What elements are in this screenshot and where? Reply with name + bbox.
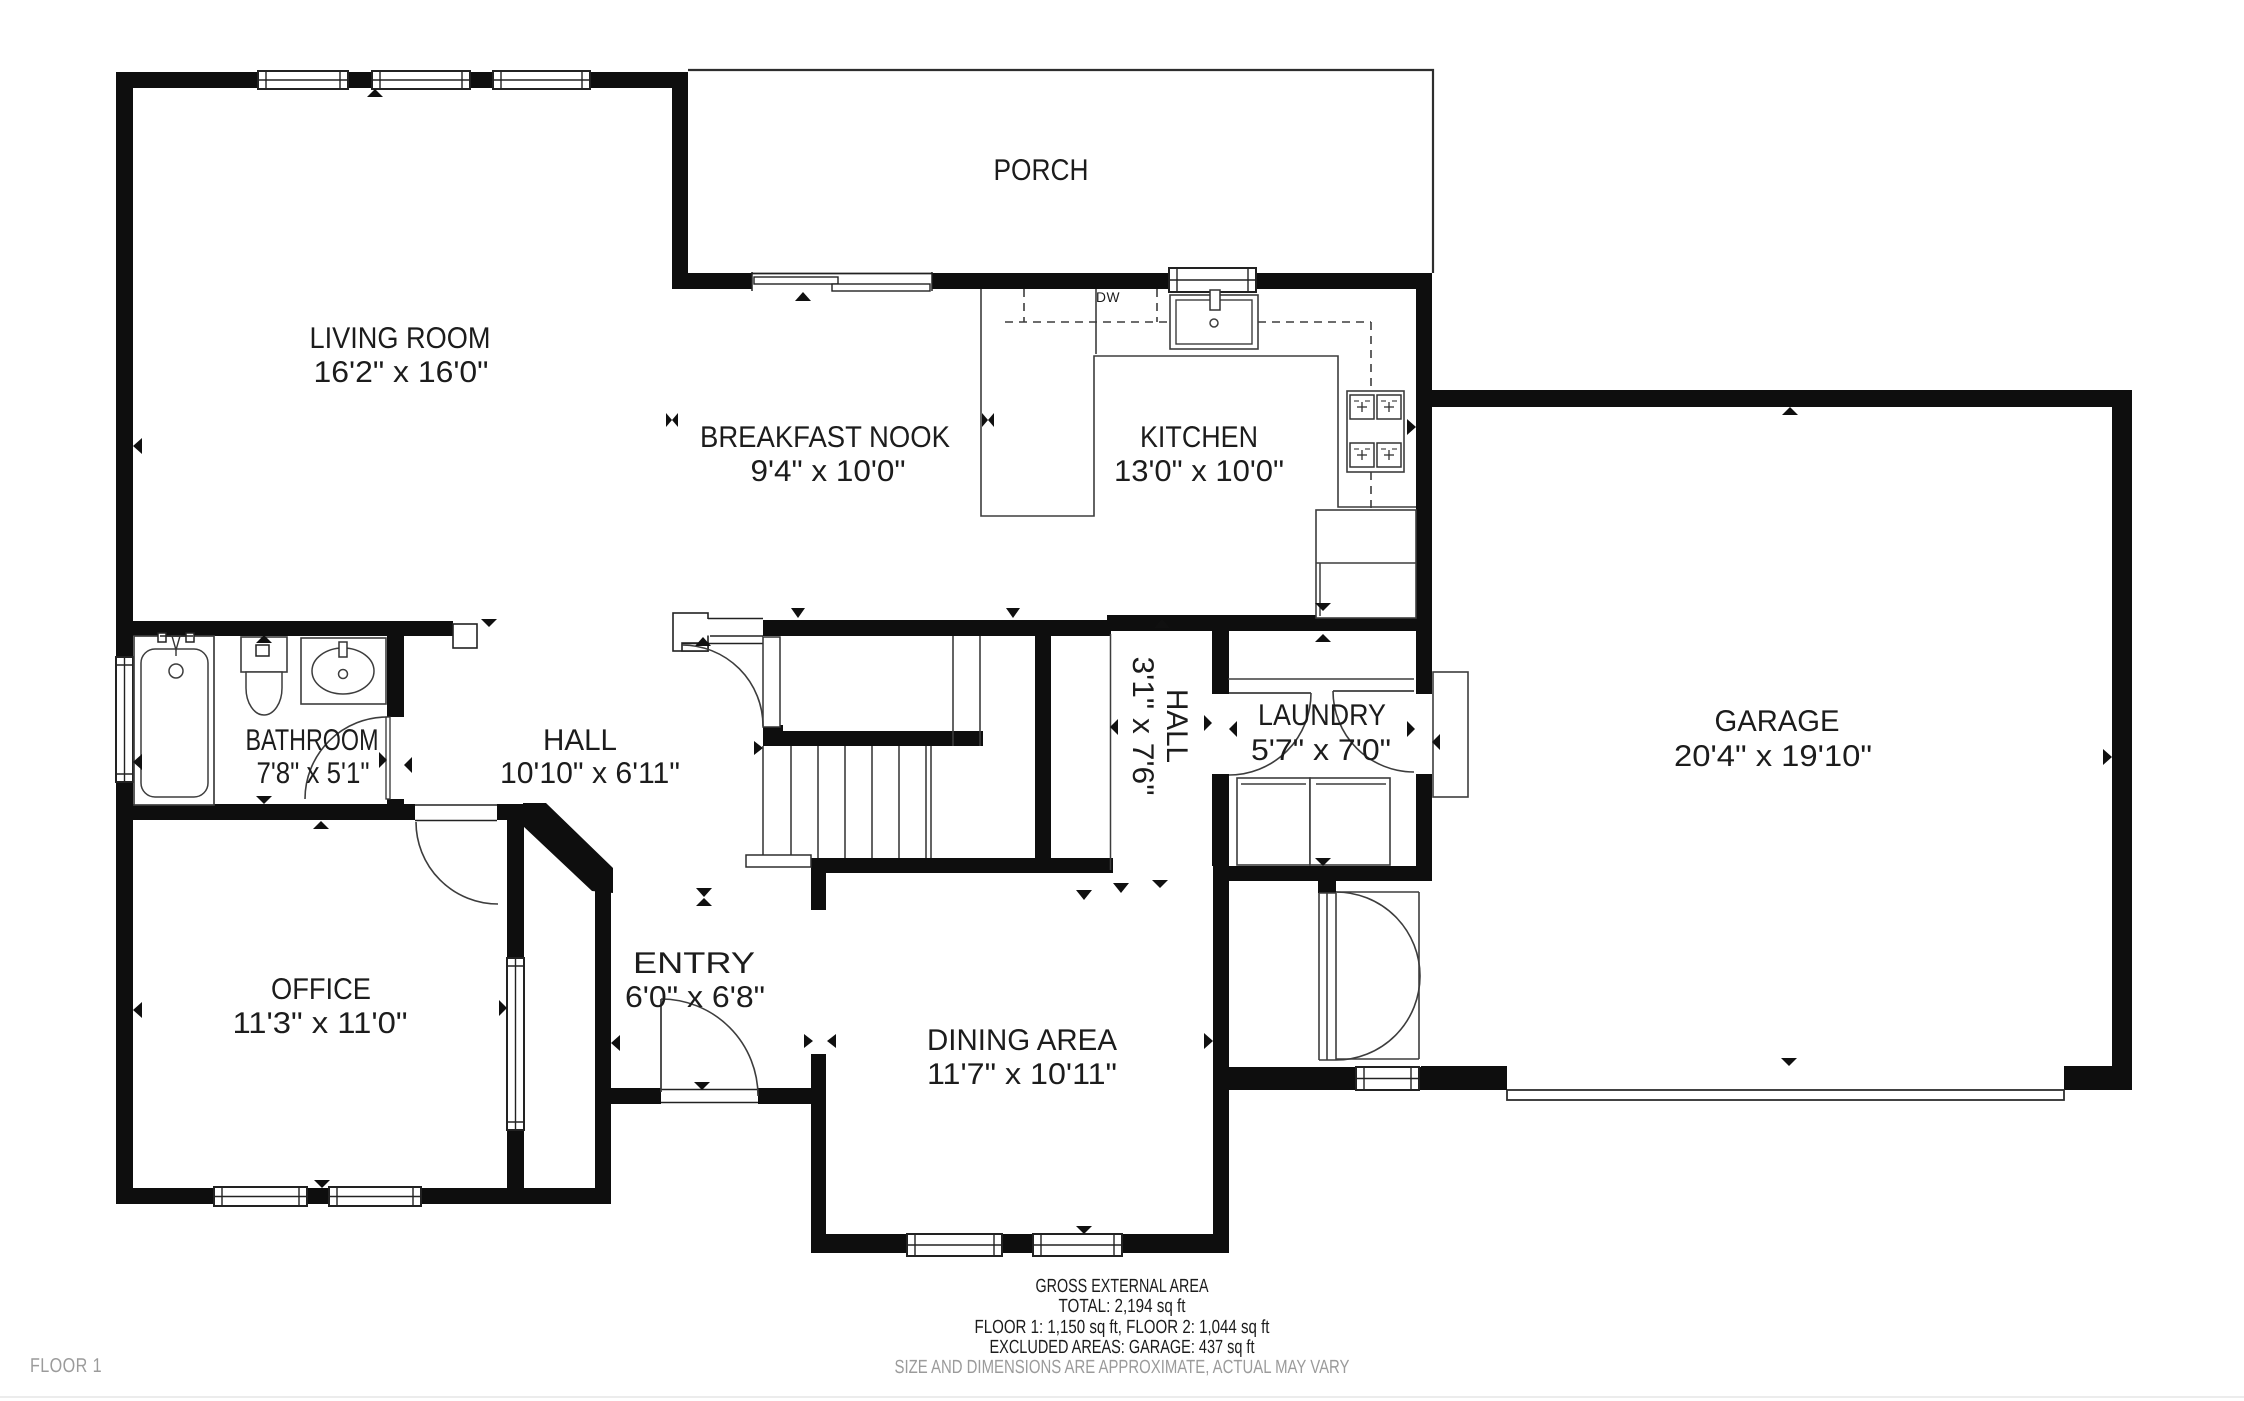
svg-text:GARAGE: GARAGE: [1715, 705, 1840, 738]
svg-text:HALL: HALL: [543, 724, 617, 757]
svg-text:DW: DW: [1096, 289, 1120, 305]
svg-text:20'4" x 19'10": 20'4" x 19'10": [1674, 740, 1872, 773]
svg-text:GROSS EXTERNAL AREA: GROSS EXTERNAL AREA: [1036, 1276, 1209, 1297]
svg-text:7'8" x 5'1": 7'8" x 5'1": [257, 757, 370, 790]
svg-text:OFFICE: OFFICE: [271, 973, 371, 1006]
svg-text:HALL: HALL: [1160, 689, 1193, 763]
svg-text:TOTAL: 2,194 sq ft: TOTAL: 2,194 sq ft: [1059, 1296, 1187, 1317]
svg-text:FLOOR 1: FLOOR 1: [30, 1355, 102, 1377]
svg-text:16'2" x 16'0": 16'2" x 16'0": [314, 356, 489, 389]
svg-text:13'0" x 10'0": 13'0" x 10'0": [1114, 455, 1284, 488]
svg-text:11'3" x 11'0": 11'3" x 11'0": [233, 1007, 408, 1040]
svg-text:3'1" x 7'6": 3'1" x 7'6": [1126, 657, 1159, 796]
svg-text:FLOOR 1: 1,150 sq ft, FLOOR 2:: FLOOR 1: 1,150 sq ft, FLOOR 2: 1,044 sq …: [975, 1317, 1271, 1338]
svg-text:DINING AREA: DINING AREA: [927, 1024, 1117, 1057]
svg-text:ENTRY: ENTRY: [633, 947, 755, 980]
svg-text:KITCHEN: KITCHEN: [1140, 421, 1258, 454]
svg-text:PORCH: PORCH: [994, 154, 1089, 187]
svg-text:6'0" x 6'8": 6'0" x 6'8": [625, 981, 765, 1014]
svg-text:10'10" x 6'11": 10'10" x 6'11": [500, 757, 680, 790]
svg-text:11'7" x 10'11": 11'7" x 10'11": [927, 1058, 1117, 1091]
svg-text:5'7" x 7'0": 5'7" x 7'0": [1251, 734, 1391, 767]
svg-text:9'4" x 10'0": 9'4" x 10'0": [751, 455, 906, 488]
svg-text:EXCLUDED AREAS: GARAGE: 437 sq: EXCLUDED AREAS: GARAGE: 437 sq ft: [990, 1337, 1256, 1358]
svg-text:BREAKFAST NOOK: BREAKFAST NOOK: [700, 421, 950, 454]
svg-text:LIVING ROOM: LIVING ROOM: [310, 322, 491, 355]
svg-text:SIZE AND DIMENSIONS ARE APPROX: SIZE AND DIMENSIONS ARE APPROXIMATE, ACT…: [895, 1357, 1350, 1378]
svg-text:LAUNDRY: LAUNDRY: [1258, 699, 1386, 732]
svg-text:BATHROOM: BATHROOM: [246, 724, 379, 757]
